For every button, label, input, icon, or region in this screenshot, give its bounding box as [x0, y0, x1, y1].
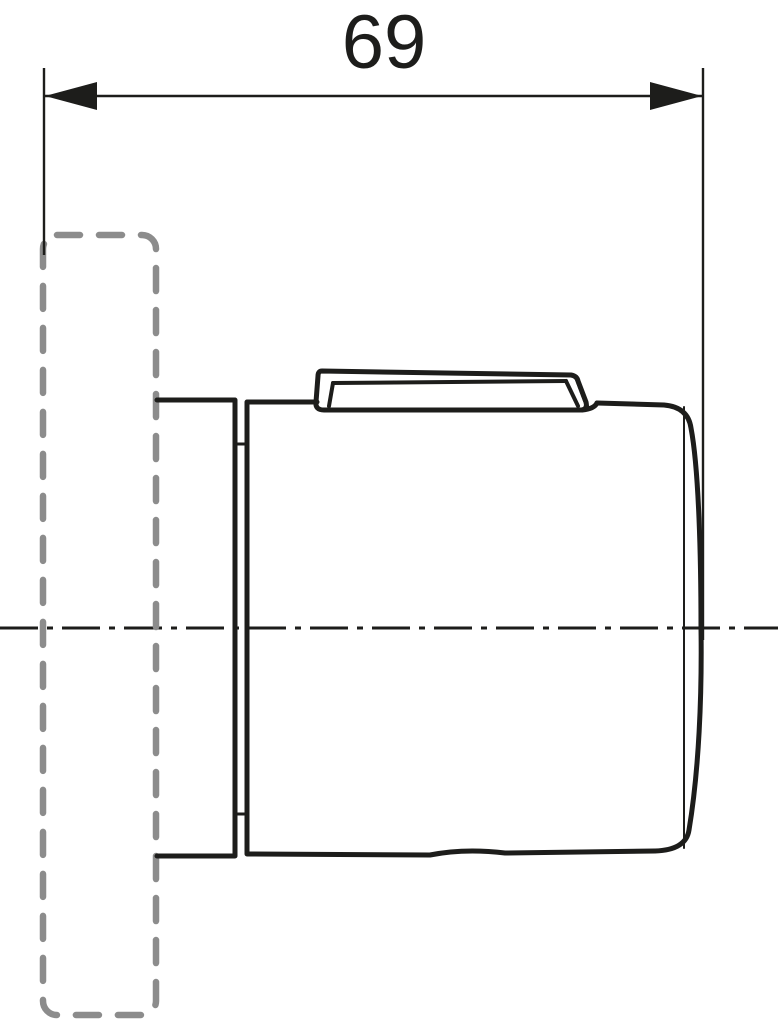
dimension-arrow-left-icon	[45, 82, 97, 110]
top-clip-left-bevel	[329, 383, 333, 406]
top-clip	[316, 371, 597, 410]
top-clip-outline	[316, 371, 587, 410]
dimension-arrow-right-icon	[650, 82, 702, 110]
dimension-label: 69	[342, 0, 427, 85]
top-clip-right-bevel-inner	[566, 381, 578, 406]
ghost-plate-outline	[43, 235, 156, 1015]
top-clip-inner-edge	[333, 381, 566, 383]
technical-drawing-page: 69	[0, 0, 778, 1024]
dimension-drawing: 69	[0, 0, 778, 1024]
